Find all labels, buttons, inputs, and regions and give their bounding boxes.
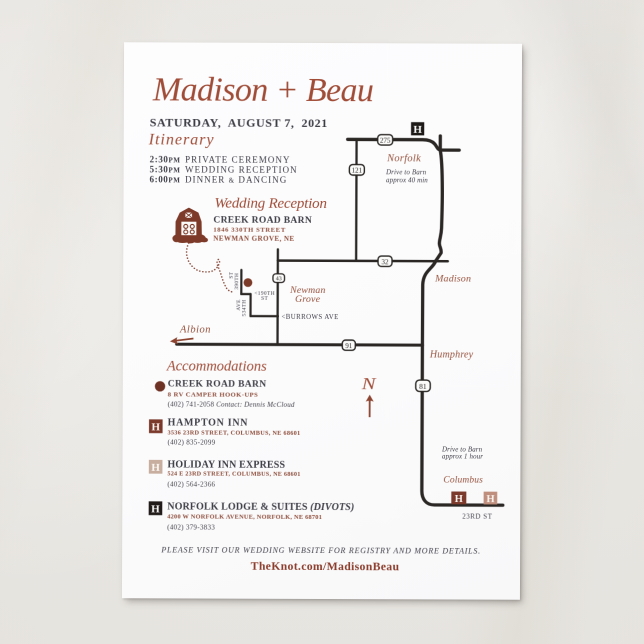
svg-text:390TH: 390TH	[234, 273, 240, 290]
svg-text:81: 81	[419, 382, 427, 391]
svg-text:H: H	[151, 462, 160, 474]
svg-text:32: 32	[382, 258, 390, 266]
svg-text:H: H	[486, 494, 494, 505]
svg-text:275: 275	[380, 137, 391, 145]
svg-text:AVE: AVE	[236, 299, 242, 311]
svg-text:121: 121	[352, 167, 363, 175]
svg-text:534TH: 534TH	[242, 299, 248, 316]
svg-text:H: H	[151, 503, 160, 515]
svg-text:ST: ST	[229, 271, 235, 278]
svg-text:H: H	[151, 421, 160, 433]
svg-text:H: H	[455, 494, 463, 505]
svg-text:91: 91	[345, 342, 353, 350]
svg-text:43: 43	[276, 276, 282, 282]
svg-text:H: H	[413, 124, 422, 136]
